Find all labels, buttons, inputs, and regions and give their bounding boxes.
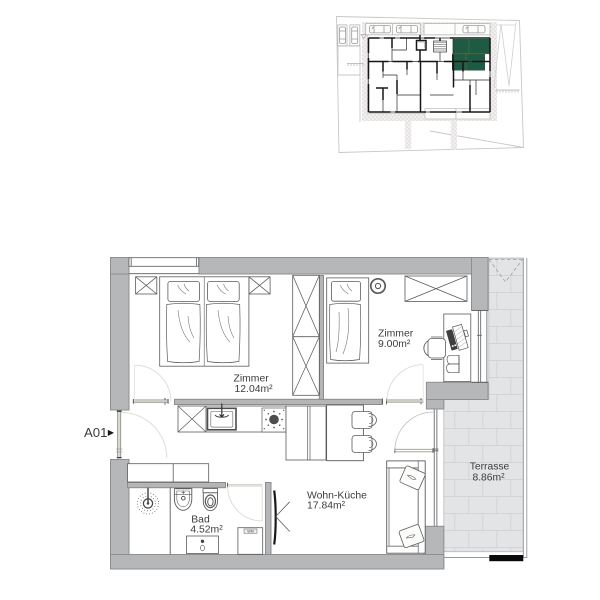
svg-text:4.52m²: 4.52m² bbox=[190, 525, 223, 536]
svg-text:8.86m²: 8.86m² bbox=[472, 473, 505, 484]
svg-text:WM: WM bbox=[247, 530, 253, 534]
svg-text:Zimmer: Zimmer bbox=[378, 329, 414, 340]
svg-text:Wohn-Küche: Wohn-Küche bbox=[307, 490, 367, 501]
svg-text:9.00m²: 9.00m² bbox=[378, 339, 411, 350]
svg-text:Terrasse: Terrasse bbox=[470, 462, 510, 473]
svg-text:17.84m²: 17.84m² bbox=[307, 501, 346, 512]
svg-text:A01: A01 bbox=[84, 425, 107, 440]
svg-text:12.04m²: 12.04m² bbox=[235, 384, 274, 395]
